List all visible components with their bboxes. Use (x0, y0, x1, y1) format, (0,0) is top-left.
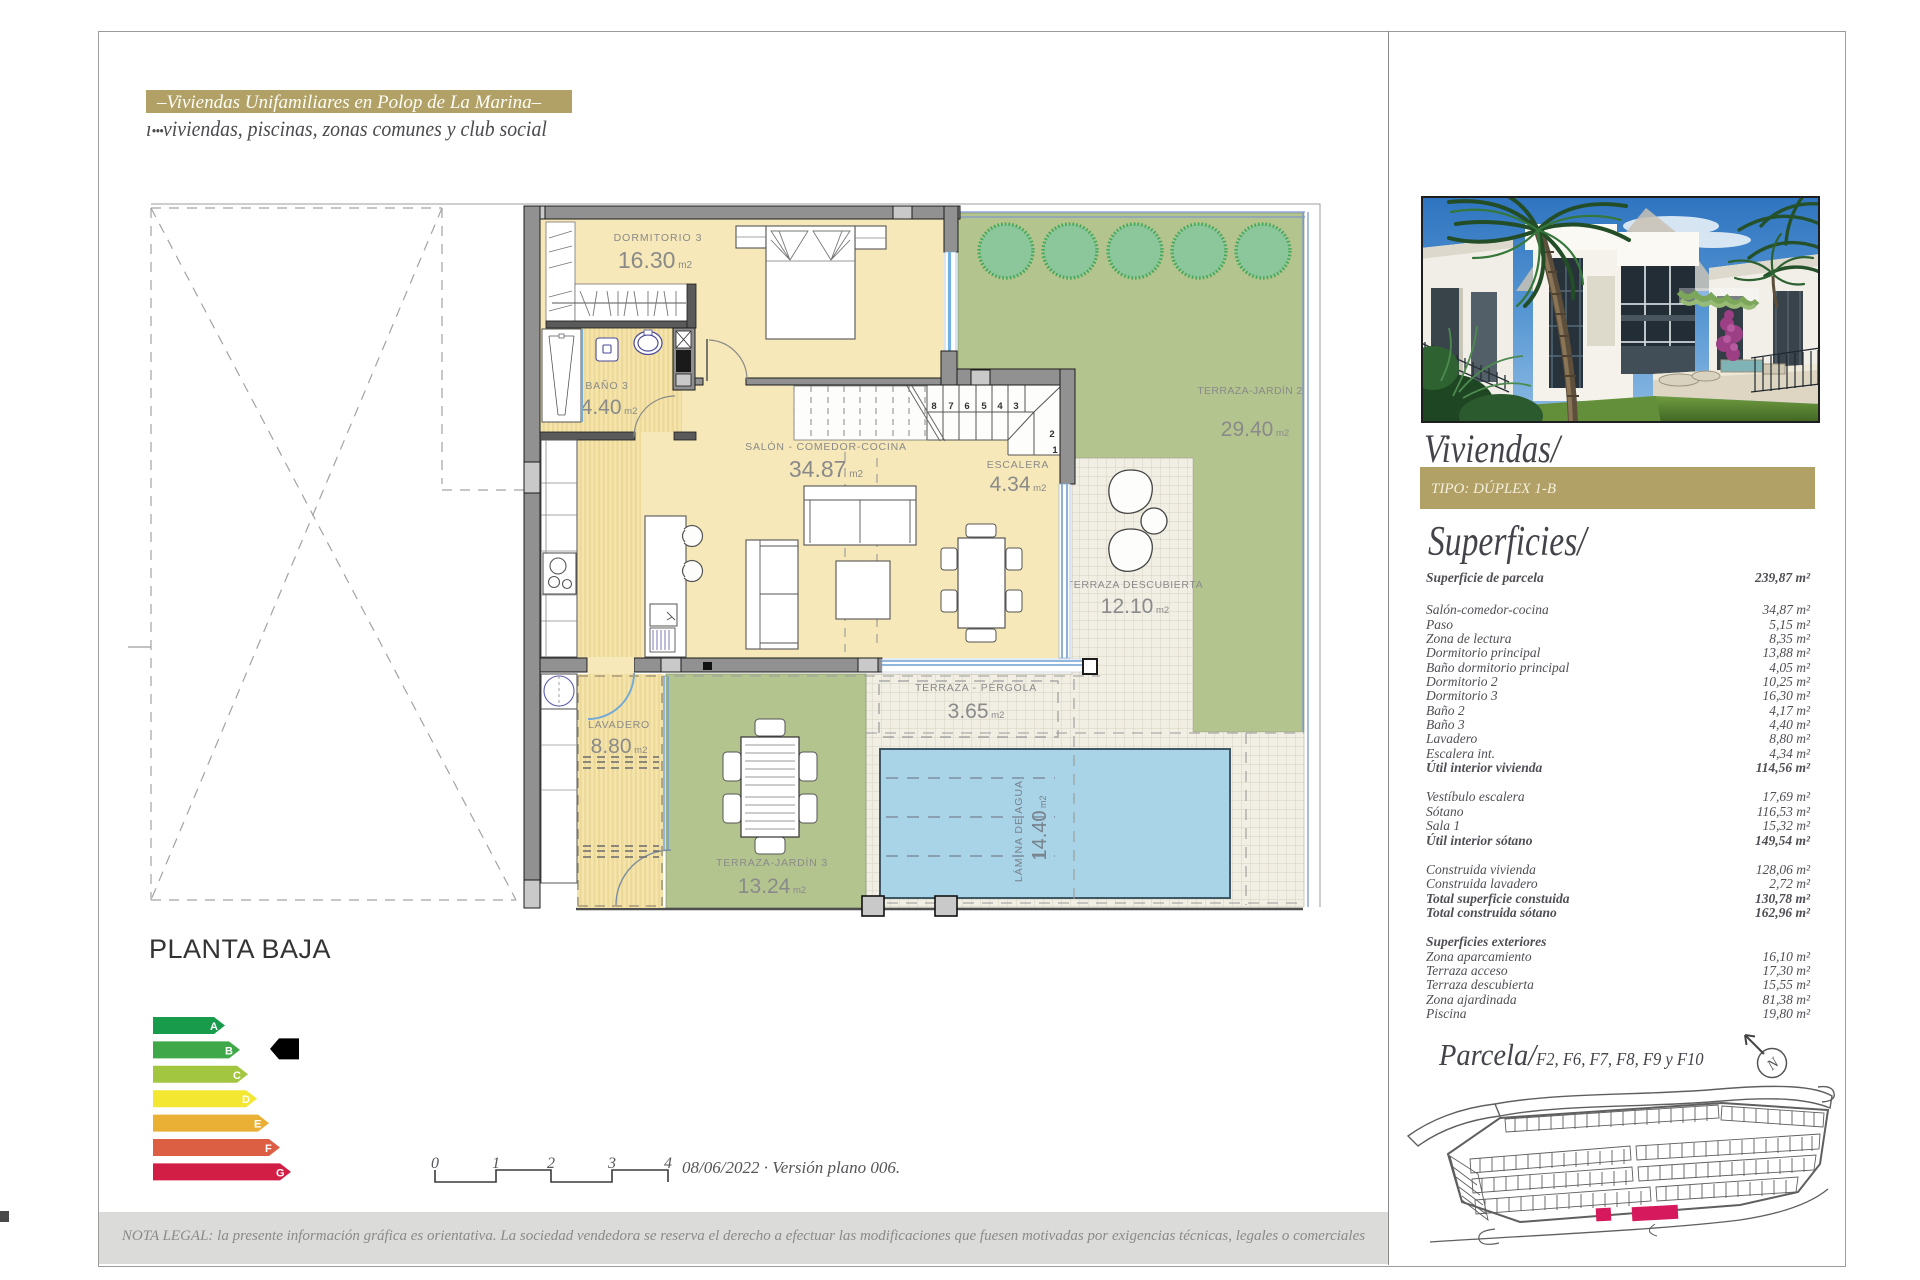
svg-text:1: 1 (1052, 445, 1058, 456)
svg-text:F: F (265, 1143, 272, 1155)
svg-text:N: N (1764, 1055, 1783, 1075)
svg-text:5: 5 (981, 401, 987, 412)
svg-text:6: 6 (964, 401, 969, 412)
svg-text:A: A (210, 1021, 218, 1033)
svg-text:LÁMINA DE AGUA: LÁMINA DE AGUA (1012, 780, 1025, 882)
svg-text:C: C (233, 1070, 241, 1082)
svg-text:ESCALERA: ESCALERA (987, 459, 1049, 471)
svg-text:LAVADERO: LAVADERO (588, 719, 650, 731)
svg-text:TERRAZA-JARDÍN 3: TERRAZA-JARDÍN 3 (716, 856, 828, 869)
svg-text:BAÑO 3: BAÑO 3 (585, 379, 628, 392)
svg-text:TERRAZA - PÉRGOLA: TERRAZA - PÉRGOLA (915, 681, 1037, 694)
svg-text:8: 8 (931, 401, 936, 412)
svg-text:E: E (254, 1119, 261, 1131)
svg-text:D: D (242, 1094, 250, 1106)
svg-text:TERRAZA DESCUBIERTA: TERRAZA DESCUBIERTA (1067, 579, 1203, 591)
svg-text:DORMITORIO 3: DORMITORIO 3 (614, 232, 703, 244)
svg-text:TERRAZA-JARDÍN 2: TERRAZA-JARDÍN 2 (1197, 384, 1303, 397)
svg-text:0: 0 (431, 1155, 439, 1172)
svg-text:SALÓN - COMEDOR-COCINA: SALÓN - COMEDOR-COCINA (745, 440, 907, 453)
svg-text:3: 3 (1013, 401, 1018, 412)
svg-text:4: 4 (997, 401, 1003, 412)
svg-text:G: G (276, 1167, 285, 1179)
svg-text:2: 2 (1049, 429, 1054, 440)
svg-text:7: 7 (948, 401, 953, 412)
svg-text:B: B (225, 1045, 233, 1057)
